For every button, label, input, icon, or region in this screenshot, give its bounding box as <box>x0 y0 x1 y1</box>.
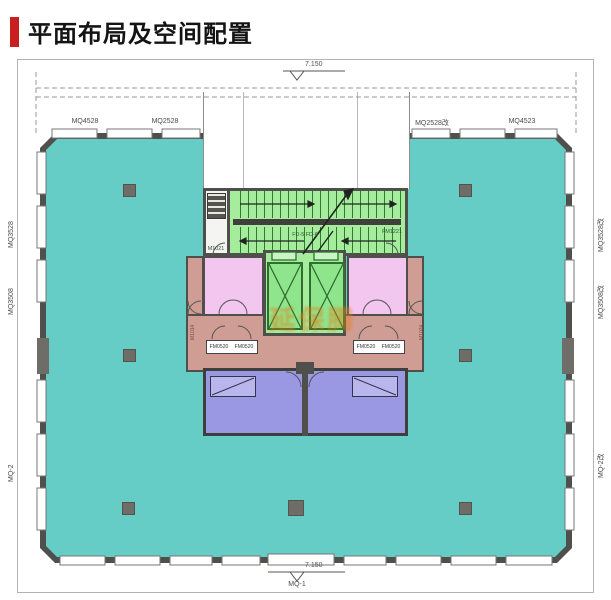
corridor-strip-left <box>186 256 204 318</box>
stair-label: FD-5 FD-6 <box>292 232 318 237</box>
side-door-label-right: M1024 <box>419 325 425 340</box>
column <box>459 349 472 362</box>
void-mullion-right <box>357 92 358 188</box>
door-tag: FM0520 <box>235 344 254 349</box>
window-label: MQ3528改 <box>596 218 606 252</box>
window-label: MQ3508 <box>8 288 15 315</box>
watermark: 延保腾 <box>258 300 368 337</box>
door-tag: FM0520 <box>210 344 229 349</box>
window-label: MQ-2 <box>8 465 15 483</box>
side-door-label-left: M1014 <box>190 325 196 340</box>
title-accent-bar <box>10 17 19 47</box>
window-label: MQ-2改 <box>596 454 606 479</box>
door-tag: FM0520 <box>382 344 401 349</box>
axis-label-mq1: MQ-1 <box>288 581 306 588</box>
door-tag-box-right: FM0520 FM0520 <box>353 340 405 354</box>
column <box>123 184 136 197</box>
furniture-right <box>352 376 398 397</box>
window-label: MQ4528 <box>72 118 99 125</box>
door-tag-box-left: FM0520 FM0520 <box>206 340 258 354</box>
stair-door-label-right: FM1221 <box>382 229 402 234</box>
page-title: 平面布局及空间配置 <box>28 14 253 49</box>
void-mullion-left <box>243 92 244 188</box>
door-tag: FM0520 <box>357 344 376 349</box>
column <box>122 502 135 515</box>
corridor-strip-right <box>406 256 424 318</box>
window-label: MQ2528改 <box>415 118 449 128</box>
stair-door-label-left: M1021 <box>208 246 225 251</box>
window-label: MQ3508改 <box>596 285 606 319</box>
furniture-left <box>210 376 256 397</box>
service-duct <box>207 193 226 219</box>
window-label: MQ4523 <box>509 118 536 125</box>
purple-room-divider-wall <box>302 368 308 436</box>
column <box>459 502 472 515</box>
door-jamb-stub <box>296 362 314 374</box>
top-void <box>203 92 410 189</box>
window-label: MQ3528 <box>8 221 15 248</box>
stair-landing <box>233 219 401 225</box>
elevation-top-value: 7.150 <box>305 61 323 68</box>
stair-flight-upper <box>233 191 401 218</box>
elevation-bottom-value: 7.150 <box>305 562 323 569</box>
room-pink-left <box>203 256 264 316</box>
floor-plan-page: 平面布局及空间配置 FM0520 FM0520 FM0520 FM0520 <box>0 0 611 600</box>
window-label: MQ2528 <box>152 118 179 125</box>
column <box>459 184 472 197</box>
column <box>123 349 136 362</box>
column <box>288 500 304 516</box>
